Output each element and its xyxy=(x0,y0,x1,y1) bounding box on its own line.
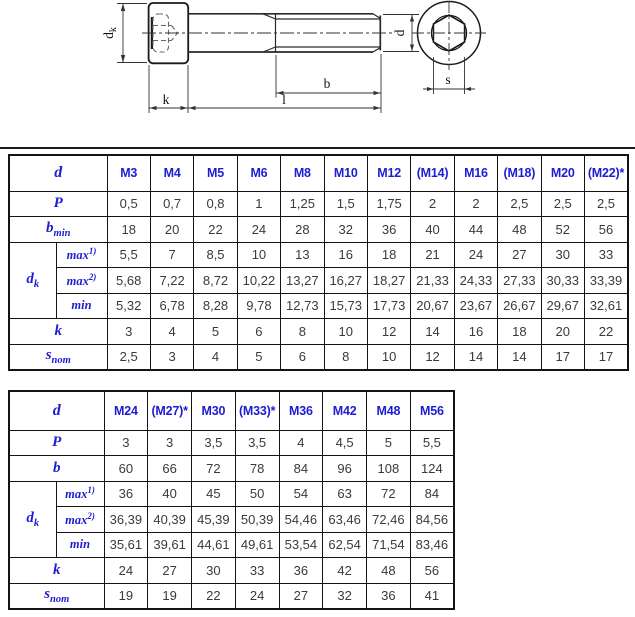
table-cell: 41 xyxy=(410,583,454,609)
table-cell: 0,5 xyxy=(107,191,150,217)
table-row: min 35,6139,6144,6149,6153,5462,5471,548… xyxy=(9,532,454,558)
table-row: min 5,326,788,289,7812,7315,7317,7320,67… xyxy=(9,293,628,319)
table-cell: 19 xyxy=(104,583,148,609)
table-cell: 5 xyxy=(237,344,280,370)
table-cell: 27,33 xyxy=(498,268,541,294)
table-row: snom 2,534568101214141717 xyxy=(9,344,628,370)
table-cell: 33 xyxy=(584,242,628,268)
table-cell: 40 xyxy=(148,481,192,507)
table-cell: 9,78 xyxy=(237,293,280,319)
table-cell: 40,39 xyxy=(148,507,192,533)
table-cell: 3 xyxy=(107,319,150,345)
column-header: M48 xyxy=(367,391,411,430)
column-header: M36 xyxy=(279,391,323,430)
table-cell: 17 xyxy=(541,344,584,370)
table-cell: 56 xyxy=(584,217,628,243)
table-cell: 8,5 xyxy=(194,242,237,268)
table-cell: 83,46 xyxy=(410,532,454,558)
row-label-k: k xyxy=(9,558,104,584)
column-header: M24 xyxy=(104,391,148,430)
b-label: b xyxy=(324,76,331,91)
table-cell: 24 xyxy=(237,217,280,243)
table-cell: 4 xyxy=(194,344,237,370)
table-cell: 44,61 xyxy=(192,532,236,558)
end-view xyxy=(412,1,486,70)
table-cell: 56 xyxy=(410,558,454,584)
row-label-d: d xyxy=(9,391,104,430)
table-cell: 26,67 xyxy=(498,293,541,319)
table-cell: 18 xyxy=(367,242,410,268)
table-cell: 5,5 xyxy=(107,242,150,268)
column-header: M42 xyxy=(323,391,367,430)
table-cell: 14 xyxy=(498,344,541,370)
table-cell: 8 xyxy=(324,344,367,370)
table-cell: 32,61 xyxy=(584,293,628,319)
table-cell: 30 xyxy=(541,242,584,268)
column-header: (M18) xyxy=(498,155,541,191)
column-header: M30 xyxy=(192,391,236,430)
table-cell: 6,78 xyxy=(150,293,193,319)
table-cell: 42 xyxy=(323,558,367,584)
table-cell: 48 xyxy=(367,558,411,584)
table-cell: 33 xyxy=(235,558,279,584)
table-cell: 2 xyxy=(411,191,454,217)
table-cell: 24 xyxy=(454,242,497,268)
table-cell: 66 xyxy=(148,456,192,482)
table-cell: 36 xyxy=(367,217,410,243)
row-label-dk: dk xyxy=(9,242,56,319)
table-cell: 3 xyxy=(148,430,192,456)
row-label-snom: snom xyxy=(9,583,104,609)
table-cell: 14 xyxy=(411,319,454,345)
table-cell: 78 xyxy=(235,456,279,482)
table-cell: 10 xyxy=(324,319,367,345)
row-sublabel-min: min xyxy=(56,293,107,319)
table-cell: 20 xyxy=(150,217,193,243)
table-cell: 36 xyxy=(104,481,148,507)
table-row: P 0,50,70,811,251,51,75222,52,52,5 xyxy=(9,191,628,217)
d-label: d xyxy=(392,29,407,36)
table-cell: 10 xyxy=(237,242,280,268)
column-header: M20 xyxy=(541,155,584,191)
dimensions-table-2: d M24(M27)*M30(M33)*M36M42M48M56 P 333,5… xyxy=(8,390,455,610)
screw-drawing: dk k l b d s xyxy=(0,0,635,148)
table-cell: 15,73 xyxy=(324,293,367,319)
table-row: dk max1) 3640455054637284 xyxy=(9,481,454,507)
table-cell: 54 xyxy=(279,481,323,507)
table-cell: 7 xyxy=(150,242,193,268)
table-cell: 124 xyxy=(410,456,454,482)
column-header: (M22)* xyxy=(584,155,628,191)
table-cell: 12 xyxy=(367,319,410,345)
row-label-snom: snom xyxy=(9,344,107,370)
table-cell: 6 xyxy=(281,344,324,370)
table-cell: 5 xyxy=(194,319,237,345)
row-sublabel-max2: max2) xyxy=(56,507,104,533)
row-sublabel-min: min xyxy=(56,532,104,558)
table-cell: 5,5 xyxy=(410,430,454,456)
table-cell: 2,5 xyxy=(584,191,628,217)
table-cell: 12,73 xyxy=(281,293,324,319)
dimensions-table-1: d M3M4M5M6M8M10M12(M14)M16(M18)M20(M22)*… xyxy=(8,154,629,371)
table-cell: 96 xyxy=(323,456,367,482)
table-cell: 2 xyxy=(454,191,497,217)
table-cell: 4 xyxy=(150,319,193,345)
table-cell: 22 xyxy=(192,583,236,609)
table-cell: 24,33 xyxy=(454,268,497,294)
table-cell: 8 xyxy=(281,319,324,345)
table-cell: 60 xyxy=(104,456,148,482)
table-cell: 30 xyxy=(192,558,236,584)
table-cell: 32 xyxy=(324,217,367,243)
table-row: d M24(M27)*M30(M33)*M36M42M48M56 xyxy=(9,391,454,430)
table-cell: 63 xyxy=(323,481,367,507)
table-cell: 27 xyxy=(279,583,323,609)
table-row: dk max1) 5,578,5101316182124273033 xyxy=(9,242,628,268)
column-header: M10 xyxy=(324,155,367,191)
table-cell: 10 xyxy=(367,344,410,370)
table-cell: 45,39 xyxy=(192,507,236,533)
column-header: (M27)* xyxy=(148,391,192,430)
table-cell: 7,22 xyxy=(150,268,193,294)
table-cell: 21,33 xyxy=(411,268,454,294)
table-cell: 32 xyxy=(323,583,367,609)
table-cell: 20 xyxy=(541,319,584,345)
k-label: k xyxy=(163,92,170,107)
table-cell: 8,72 xyxy=(194,268,237,294)
row-label-d: d xyxy=(9,155,107,191)
table-cell: 33,39 xyxy=(584,268,628,294)
table-cell: 63,46 xyxy=(323,507,367,533)
table-cell: 18,27 xyxy=(367,268,410,294)
table-row: max2) 5,687,228,7210,2213,2716,2718,2721… xyxy=(9,268,628,294)
table-row: P 333,53,544,555,5 xyxy=(9,430,454,456)
table-cell: 22 xyxy=(584,319,628,345)
row-label-b: b xyxy=(9,456,104,482)
table-cell: 0,7 xyxy=(150,191,193,217)
column-header: (M14) xyxy=(411,155,454,191)
table-cell: 0,8 xyxy=(194,191,237,217)
table-cell: 16,27 xyxy=(324,268,367,294)
table-cell: 84 xyxy=(279,456,323,482)
table-cell: 44 xyxy=(454,217,497,243)
table-cell: 22 xyxy=(194,217,237,243)
table-cell: 3,5 xyxy=(192,430,236,456)
table-cell: 17 xyxy=(584,344,628,370)
table-cell: 49,61 xyxy=(235,532,279,558)
table-cell: 23,67 xyxy=(454,293,497,319)
row-sublabel-max2: max2) xyxy=(56,268,107,294)
table-cell: 1 xyxy=(237,191,280,217)
column-header: M6 xyxy=(237,155,280,191)
table-cell: 35,61 xyxy=(104,532,148,558)
table-cell: 17,73 xyxy=(367,293,410,319)
row-label-p: P xyxy=(9,430,104,456)
table-cell: 4,5 xyxy=(323,430,367,456)
table-cell: 84 xyxy=(410,481,454,507)
column-header: M16 xyxy=(454,155,497,191)
table-cell: 2,5 xyxy=(498,191,541,217)
table-cell: 50,39 xyxy=(235,507,279,533)
column-header: M56 xyxy=(410,391,454,430)
s-label: s xyxy=(445,72,450,87)
row-label-p: P xyxy=(9,191,107,217)
table-cell: 2,5 xyxy=(541,191,584,217)
table-cell: 10,22 xyxy=(237,268,280,294)
table-cell: 13 xyxy=(281,242,324,268)
table-cell: 16 xyxy=(454,319,497,345)
row-label-dk: dk xyxy=(9,481,56,558)
table-cell: 27 xyxy=(148,558,192,584)
table-row: b 606672788496108124 xyxy=(9,456,454,482)
row-sublabel-max1: max1) xyxy=(56,481,104,507)
table-cell: 28 xyxy=(281,217,324,243)
table-cell: 54,46 xyxy=(279,507,323,533)
column-header: M5 xyxy=(194,155,237,191)
table-cell: 1,25 xyxy=(281,191,324,217)
column-header: M8 xyxy=(281,155,324,191)
table-cell: 108 xyxy=(367,456,411,482)
dk-label: dk xyxy=(101,27,119,39)
table-cell: 50 xyxy=(235,481,279,507)
table-cell: 72,46 xyxy=(367,507,411,533)
table-cell: 21 xyxy=(411,242,454,268)
table-cell: 45 xyxy=(192,481,236,507)
table-cell: 27 xyxy=(498,242,541,268)
table-cell: 14 xyxy=(454,344,497,370)
table-cell: 72 xyxy=(367,481,411,507)
table-cell: 48 xyxy=(498,217,541,243)
table-cell: 30,33 xyxy=(541,268,584,294)
table-cell: 36,39 xyxy=(104,507,148,533)
table-cell: 13,27 xyxy=(281,268,324,294)
table-cell: 8,28 xyxy=(194,293,237,319)
row-label-k: k xyxy=(9,319,107,345)
table-cell: 16 xyxy=(324,242,367,268)
side-view xyxy=(142,3,395,63)
row-sublabel-max1: max1) xyxy=(56,242,107,268)
table-cell: 53,54 xyxy=(279,532,323,558)
table-cell: 84,56 xyxy=(410,507,454,533)
table-cell: 71,54 xyxy=(367,532,411,558)
table-cell: 52 xyxy=(541,217,584,243)
table-row: bmin 182022242832364044485256 xyxy=(9,217,628,243)
column-header: (M33)* xyxy=(235,391,279,430)
table-cell: 3 xyxy=(104,430,148,456)
table-cell: 3,5 xyxy=(235,430,279,456)
table-cell: 24 xyxy=(235,583,279,609)
table-cell: 36 xyxy=(279,558,323,584)
row-label-bmin: bmin xyxy=(9,217,107,243)
table-cell: 6 xyxy=(237,319,280,345)
table-cell: 5,68 xyxy=(107,268,150,294)
table-cell: 1,75 xyxy=(367,191,410,217)
column-header: M4 xyxy=(150,155,193,191)
column-header: M3 xyxy=(107,155,150,191)
table-cell: 5 xyxy=(367,430,411,456)
table-cell: 39,61 xyxy=(148,532,192,558)
table-cell: 62,54 xyxy=(323,532,367,558)
column-header: M12 xyxy=(367,155,410,191)
table-cell: 20,67 xyxy=(411,293,454,319)
table-cell: 4 xyxy=(279,430,323,456)
table-cell: 18 xyxy=(107,217,150,243)
table-cell: 5,32 xyxy=(107,293,150,319)
table-cell: 1,5 xyxy=(324,191,367,217)
table-row: snom 1919222427323641 xyxy=(9,583,454,609)
table-row: k 2427303336424856 xyxy=(9,558,454,584)
table-row: k 3456810121416182022 xyxy=(9,319,628,345)
table-row: max2) 36,3940,3945,3950,3954,4663,4672,4… xyxy=(9,507,454,533)
table-cell: 18 xyxy=(498,319,541,345)
table-cell: 72 xyxy=(192,456,236,482)
table-row: d M3M4M5M6M8M10M12(M14)M16(M18)M20(M22)* xyxy=(9,155,628,191)
table-cell: 19 xyxy=(148,583,192,609)
table-cell: 29,67 xyxy=(541,293,584,319)
table-cell: 24 xyxy=(104,558,148,584)
table-cell: 2,5 xyxy=(107,344,150,370)
table-cell: 40 xyxy=(411,217,454,243)
table-cell: 12 xyxy=(411,344,454,370)
horizontal-divider xyxy=(0,147,635,149)
table-cell: 3 xyxy=(150,344,193,370)
table-cell: 36 xyxy=(367,583,411,609)
